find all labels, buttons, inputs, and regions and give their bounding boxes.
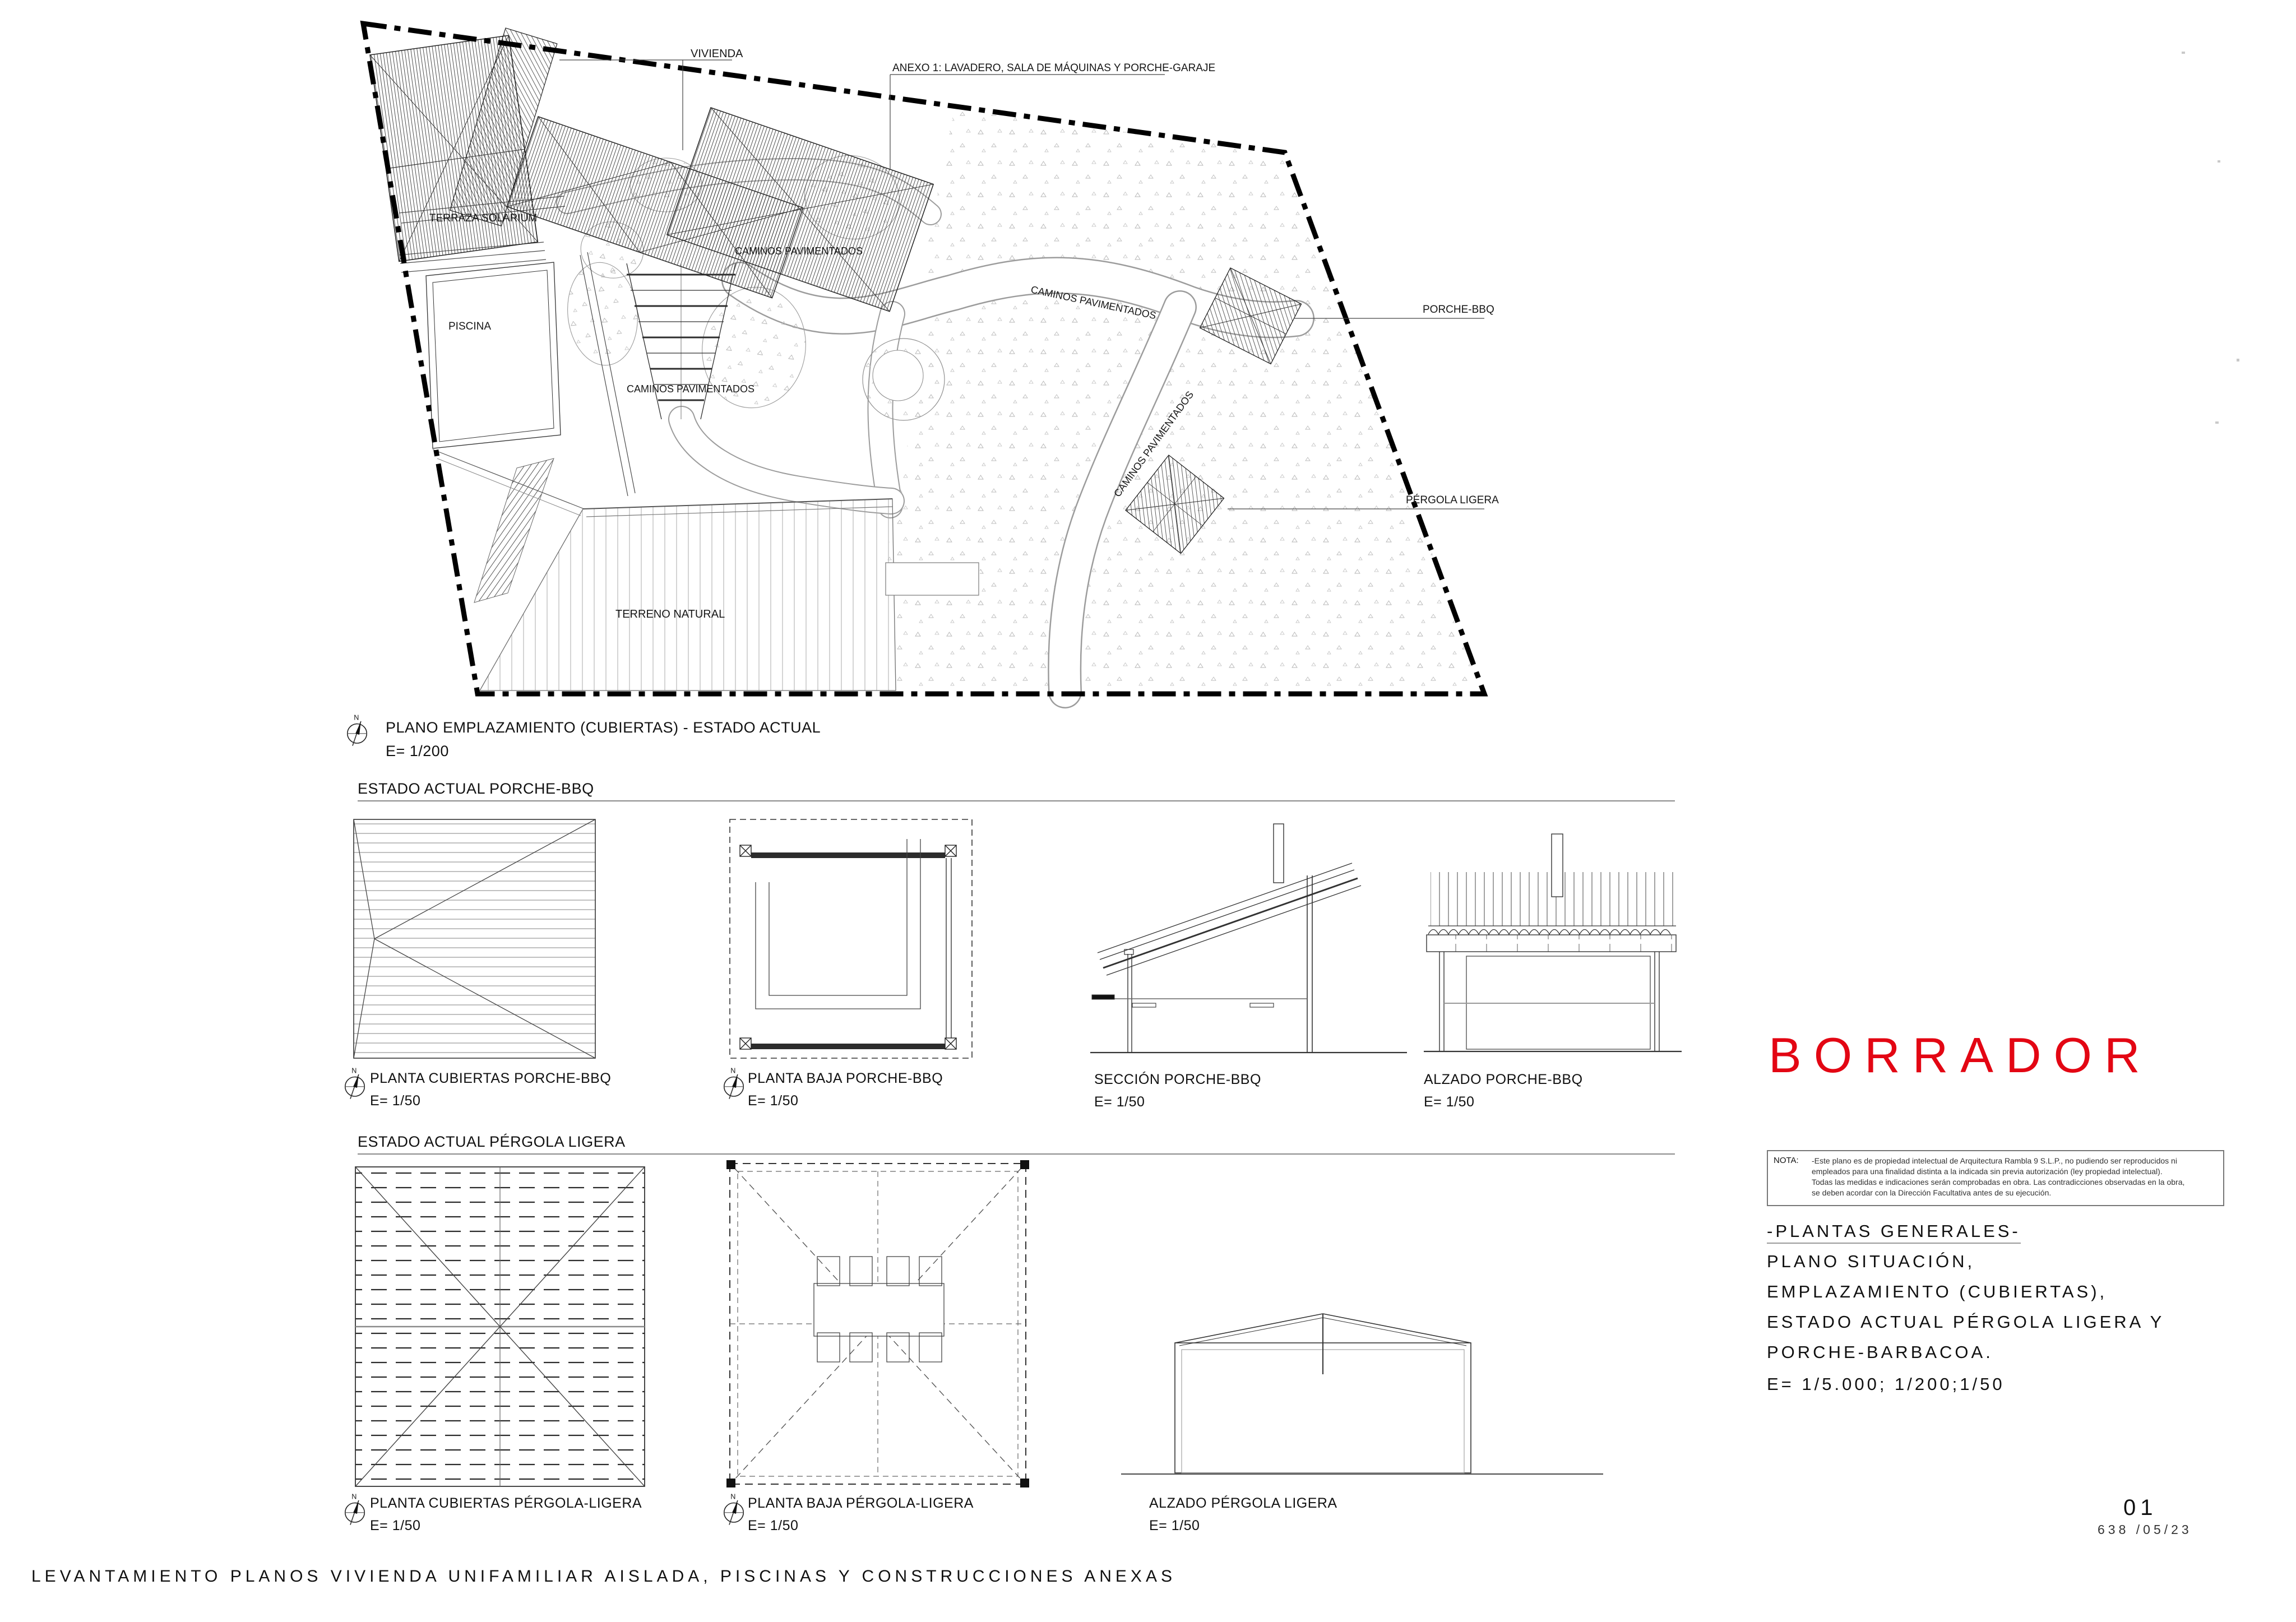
svg-text:N: N bbox=[730, 1493, 735, 1501]
scan-speck bbox=[2215, 421, 2219, 424]
north-compass-icon: N bbox=[344, 713, 370, 748]
title-block-line: PORCHE-BARBACOA. bbox=[1767, 1337, 2164, 1368]
title-block: -PLANTAS GENERALES- PLANO SITUACIÓN, EMP… bbox=[1767, 1216, 2164, 1368]
drawing-planta-baja-pergola bbox=[726, 1160, 1029, 1487]
title-block-line: ESTADO ACTUAL PÉRGOLA LIGERA Y bbox=[1767, 1307, 2164, 1337]
sheet-code: 638 /05/23 bbox=[2098, 1522, 2192, 1537]
footer-title: LEVANTAMIENTO PLANOS VIVIENDA UNIFAMILIA… bbox=[31, 1567, 1176, 1586]
caption-alzado-porche: ALZADO PORCHE-BBQ E= 1/50 bbox=[1424, 1072, 1583, 1110]
svg-text:N: N bbox=[351, 1493, 357, 1501]
svg-text:N: N bbox=[354, 714, 359, 722]
nota-box: NOTA: -Este plano es de propiedad intele… bbox=[1767, 1150, 2224, 1206]
caption-scale: E= 1/50 bbox=[1149, 1518, 1337, 1534]
caption-title: PLANTA BAJA PORCHE-BBQ bbox=[748, 1070, 943, 1087]
north-compass-icon: N bbox=[721, 1492, 747, 1527]
label-pergola-ligera: PÉRGOLA LIGERA bbox=[1406, 494, 1499, 506]
label-anexo: ANEXO 1: LAVADERO, SALA DE MÁQUINAS Y PO… bbox=[892, 62, 1215, 74]
nota-line: Todas las medidas e indicaciones serán c… bbox=[1812, 1177, 2218, 1188]
caption-title: PLANTA BAJA PÉRGOLA-LIGERA bbox=[748, 1495, 974, 1512]
drawing-seccion-porche bbox=[1090, 824, 1407, 1053]
sheet-number: 01 bbox=[2123, 1495, 2158, 1521]
nota-line: -Este plano es de propiedad intelectual … bbox=[1812, 1156, 2218, 1166]
section-heading-pergola: ESTADO ACTUAL PÉRGOLA LIGERA bbox=[358, 1133, 626, 1151]
svg-text:N: N bbox=[730, 1067, 735, 1075]
caption-scale: E= 1/50 bbox=[748, 1518, 974, 1534]
caption-title: PLANTA CUBIERTAS PORCHE-BBQ bbox=[370, 1070, 611, 1087]
label-porche-bbq: PORCHE-BBQ bbox=[1423, 304, 1494, 316]
section-heading-porche-bbq: ESTADO ACTUAL PORCHE-BBQ bbox=[358, 780, 594, 798]
label-piscina: PISCINA bbox=[448, 321, 491, 332]
north-compass-icon: N bbox=[342, 1066, 368, 1101]
caption-seccion-porche: SECCIÓN PORCHE-BBQ E= 1/50 bbox=[1094, 1072, 1261, 1110]
caption-planta-cubiertas-porche: PLANTA CUBIERTAS PORCHE-BBQ E= 1/50 bbox=[370, 1070, 611, 1109]
drawing-planta-cubiertas-porche bbox=[354, 819, 595, 1058]
site-plan-caption-title: PLANO EMPLAZAMIENTO (CUBIERTAS) - ESTADO… bbox=[386, 719, 821, 736]
drawing-alzado-porche bbox=[1424, 834, 1682, 1051]
caption-scale: E= 1/50 bbox=[748, 1093, 943, 1109]
caption-planta-baja-porche: PLANTA BAJA PORCHE-BBQ E= 1/50 bbox=[748, 1070, 943, 1109]
caption-title: ALZADO PORCHE-BBQ bbox=[1424, 1072, 1583, 1088]
scan-speck bbox=[2218, 160, 2220, 163]
pergola-table-and-chairs bbox=[814, 1257, 944, 1362]
caption-alzado-pergola: ALZADO PÉRGOLA LIGERA E= 1/50 bbox=[1149, 1495, 1337, 1534]
title-block-line: EMPLAZAMIENTO (CUBIERTAS), bbox=[1767, 1277, 2164, 1307]
scan-speck bbox=[2182, 52, 2185, 54]
borrador-watermark: BORRADOR bbox=[1769, 1027, 2152, 1084]
label-vivienda: VIVIENDA bbox=[691, 48, 743, 60]
caption-scale: E= 1/50 bbox=[370, 1093, 611, 1109]
caption-scale: E= 1/50 bbox=[1424, 1094, 1583, 1110]
pool bbox=[426, 262, 561, 448]
porche-bbq-drawings bbox=[336, 801, 1693, 1065]
site-plan-drawing: VIVIENDA ANEXO 1: LAVADERO, SALA DE MÁQU… bbox=[314, 11, 1715, 712]
north-compass-icon: N bbox=[342, 1492, 368, 1527]
nota-text: -Este plano es de propiedad intelectual … bbox=[1812, 1156, 2218, 1198]
caption-planta-baja-pergola: PLANTA BAJA PÉRGOLA-LIGERA E= 1/50 bbox=[748, 1495, 974, 1534]
drawing-alzado-pergola bbox=[1121, 1314, 1603, 1474]
north-compass-icon: N bbox=[721, 1066, 747, 1101]
label-caminos-3: CAMINOS PAVIMENTADOS bbox=[627, 383, 754, 395]
caption-planta-cubiertas-pergola: PLANTA CUBIERTAS PÉRGOLA-LIGERA E= 1/50 bbox=[370, 1495, 642, 1534]
scan-speck bbox=[2237, 359, 2239, 362]
drawing-sheet: VIVIENDA ANEXO 1: LAVADERO, SALA DE MÁQU… bbox=[0, 0, 2296, 1622]
svg-text:N: N bbox=[351, 1067, 357, 1075]
nota-label: NOTA: bbox=[1774, 1156, 1799, 1165]
caption-scale: E= 1/50 bbox=[370, 1518, 642, 1534]
drawing-planta-baja-porche bbox=[730, 819, 972, 1058]
title-block-scale: E= 1/5.000; 1/200;1/50 bbox=[1767, 1374, 2005, 1394]
label-terraza-solarium: TERRAZA SOLARIUM bbox=[429, 212, 537, 224]
title-block-line: PLANO SITUACIÓN, bbox=[1767, 1246, 2164, 1277]
nota-line: se deben acordar con la Dirección Facult… bbox=[1812, 1188, 2218, 1198]
caption-scale: E= 1/50 bbox=[1094, 1094, 1261, 1110]
label-caminos-1: CAMINOS PAVIMENTADOS bbox=[735, 245, 863, 257]
caption-title: SECCIÓN PORCHE-BBQ bbox=[1094, 1072, 1261, 1088]
label-terreno-natural: TERRENO NATURAL bbox=[615, 608, 725, 620]
drawing-planta-cubiertas-pergola bbox=[355, 1167, 645, 1486]
caption-title: PLANTA CUBIERTAS PÉRGOLA-LIGERA bbox=[370, 1495, 642, 1512]
site-plan-caption-scale: E= 1/200 bbox=[386, 743, 821, 760]
roof-anexo bbox=[667, 108, 933, 312]
pergola-drawings bbox=[336, 1155, 1693, 1496]
caption-title: ALZADO PÉRGOLA LIGERA bbox=[1149, 1495, 1337, 1512]
site-plan-caption: PLANO EMPLAZAMIENTO (CUBIERTAS) - ESTADO… bbox=[386, 719, 821, 760]
nota-line: empleados para una finalidad distinta a … bbox=[1812, 1166, 2218, 1177]
title-block-line: -PLANTAS GENERALES- bbox=[1767, 1221, 2021, 1244]
